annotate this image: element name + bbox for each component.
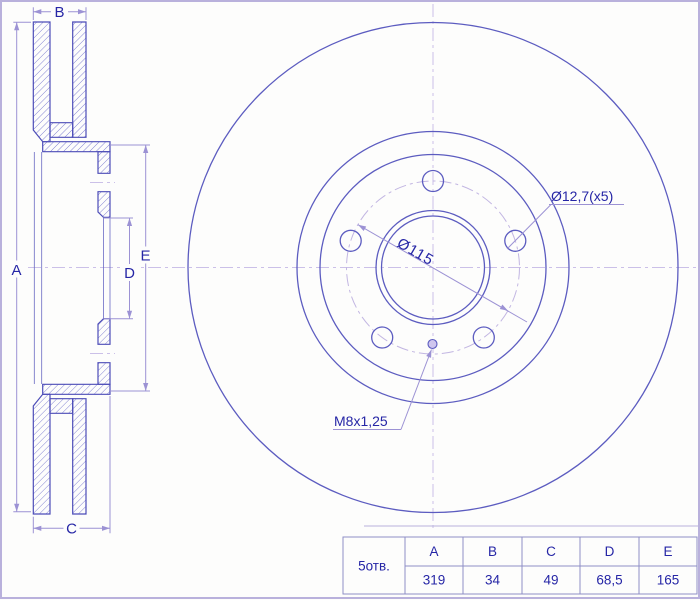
table-header-b: B: [488, 544, 497, 559]
table-value-c: 49: [543, 573, 558, 588]
table-header-d: D: [605, 544, 615, 559]
spec-table: 5отв. A B C D E 319 34 49 68,5 165: [343, 526, 698, 594]
table-value-b: 34: [485, 573, 501, 588]
section-inboard-plate-bottom: [73, 399, 86, 514]
bolt-hole-upper-left: [340, 230, 361, 251]
section-hat-web-bottom: [43, 384, 110, 394]
dimension-B: B: [33, 3, 86, 21]
section-hat-web-top: [43, 142, 110, 152]
brake-disc-drawing-page: A B C D: [0, 0, 700, 600]
pcd-diameter-label: Ø115: [394, 235, 437, 270]
section-vent-floor-top: [50, 123, 73, 138]
set-screw-callout: M8x1,25: [333, 349, 434, 430]
section-hat-wall-bottom-b: [98, 319, 110, 345]
table-header-c: C: [546, 544, 556, 559]
section-view: A B C D: [9, 3, 154, 538]
dimension-D: D: [104, 218, 138, 319]
table-value-d: 68,5: [596, 573, 622, 588]
section-outboard-plate-bottom: [33, 394, 50, 514]
dim-label-e: E: [140, 248, 150, 265]
table-row-label: 5отв.: [358, 559, 390, 574]
table-header-e: E: [663, 544, 672, 559]
section-vent-floor-bottom: [50, 399, 73, 414]
section-hat-wall-top-b: [98, 192, 110, 218]
table-value-a: 319: [423, 573, 446, 588]
dim-label-a: A: [11, 262, 21, 279]
section-inboard-plate-top: [73, 22, 86, 137]
technical-drawing-canvas: A B C D: [0, 0, 700, 600]
drawing-frame: [1, 1, 699, 598]
table-value-e: 165: [657, 573, 680, 588]
table-header-a: A: [429, 544, 438, 559]
set-screw-hole: [428, 340, 437, 349]
section-outboard-plate-top: [33, 22, 50, 142]
section-hat-wall-bottom-a: [98, 363, 110, 385]
bolt-hole-lower-right: [473, 327, 494, 348]
dim-label-b: B: [54, 4, 64, 21]
bolt-holes-label: Ø12,7(x5): [551, 188, 613, 204]
dim-label-c: C: [66, 521, 77, 538]
dimension-A: A: [9, 22, 32, 511]
section-hat-wall-top-a: [98, 152, 110, 174]
set-screw-label: M8x1,25: [334, 413, 388, 429]
dim-label-d: D: [124, 265, 135, 282]
front-view: Ø115 Ø12,7(x5) M8x1,25: [188, 4, 678, 529]
